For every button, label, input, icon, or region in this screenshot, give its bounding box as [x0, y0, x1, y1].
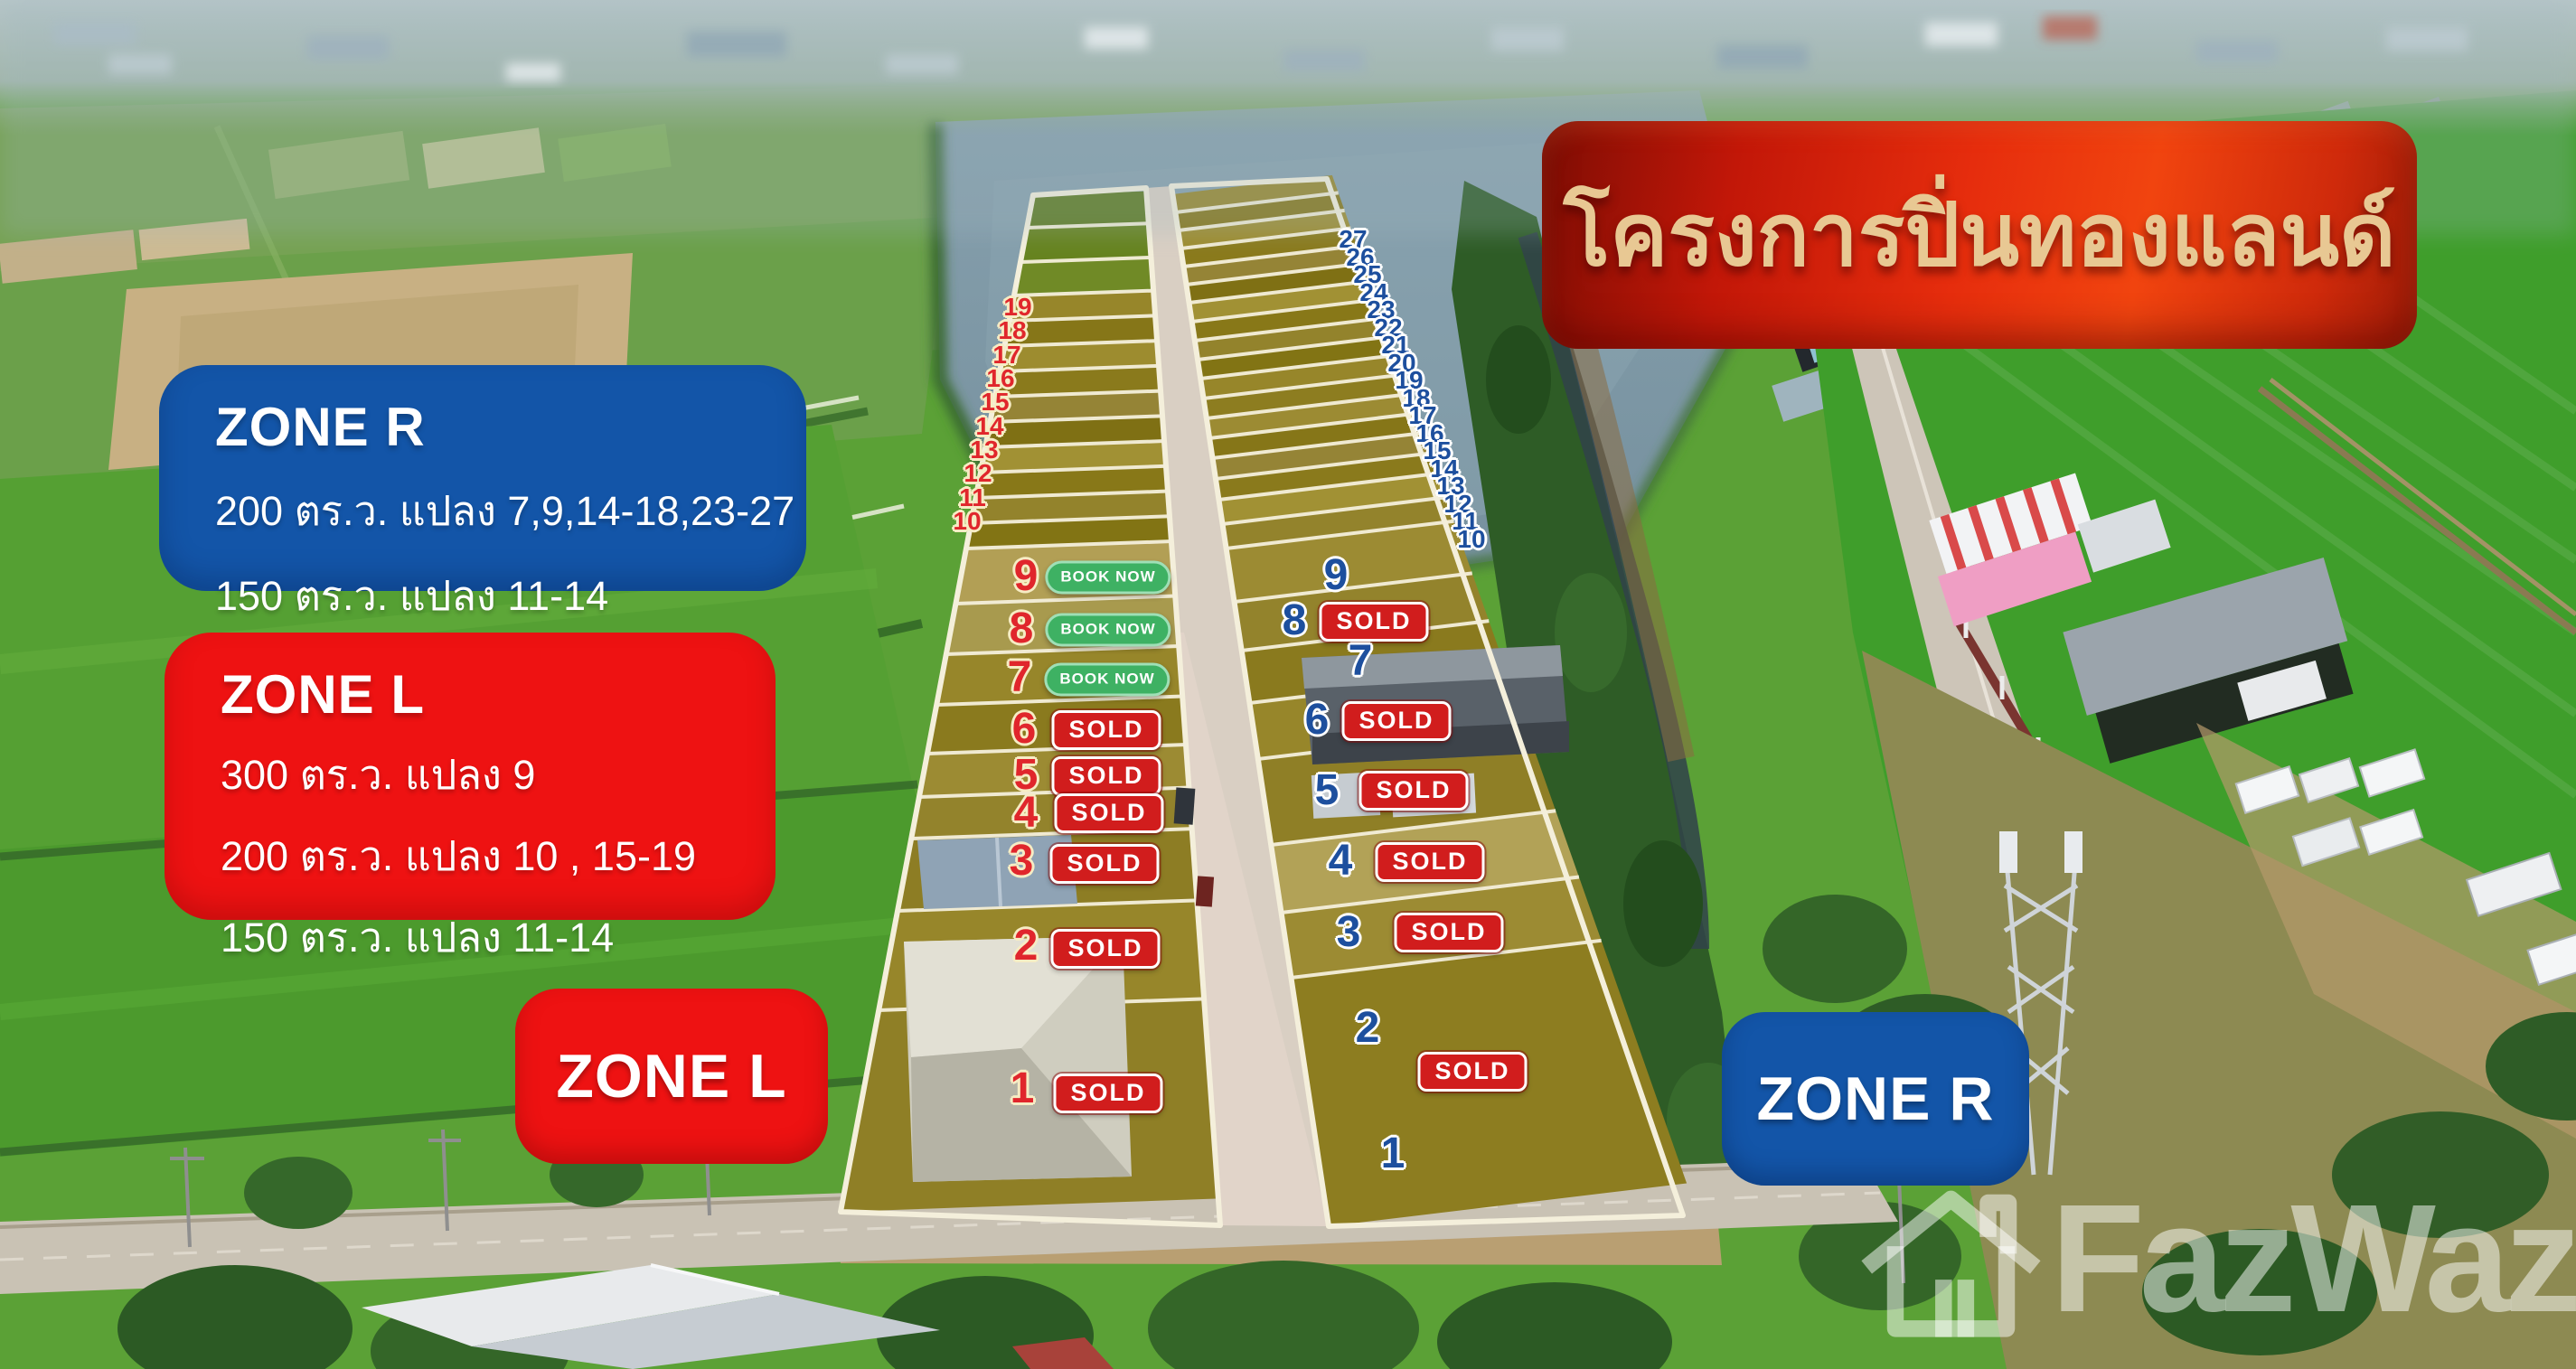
zone-l-label-text: ZONE L — [556, 1041, 786, 1111]
project-title-banner: โครงการปิ่นทองแลนด์ — [1542, 121, 2417, 349]
zone-r-info-line: 150 ตร.ว. แปลง 11-14 — [215, 563, 806, 628]
zone-r-label-text: ZONE R — [1757, 1064, 1995, 1134]
house-icon — [1858, 1166, 2044, 1351]
project-title: โครงการปิ่นทองแลนด์ — [1564, 166, 2396, 304]
zone-l-info-line: 300 ตร.ว. แปลง 9 — [221, 742, 776, 807]
zone-r-info-lines: 200 ตร.ว. แปลง 7,9,14-18,23-27150 ตร.ว. … — [215, 478, 806, 628]
zone-l-info-box: ZONE L 300 ตร.ว. แปลง 9200 ตร.ว. แปลง 10… — [165, 633, 776, 920]
zone-r-info-box: ZONE R 200 ตร.ว. แปลง 7,9,14-18,23-27150… — [159, 365, 806, 591]
aerial-site-photo: โครงการปิ่นทองแลนด์ ZONE R 200 ตร.ว. แปล… — [0, 0, 2576, 1369]
zone-r-info-line: 200 ตร.ว. แปลง 7,9,14-18,23-27 — [215, 478, 806, 543]
watermark-text: FazWaz — [2051, 1170, 2576, 1347]
zone-r-info-title: ZONE R — [215, 396, 806, 458]
zone-l-info-line: 200 ตร.ว. แปลง 10 , 15-19 — [221, 823, 776, 888]
zone-l-info-lines: 300 ตร.ว. แปลง 9200 ตร.ว. แปลง 10 , 15-1… — [221, 742, 776, 970]
fazwaz-watermark: FazWaz — [1858, 1166, 2576, 1351]
zone-r-label: ZONE R — [1722, 1012, 2029, 1186]
zone-l-label: ZONE L — [515, 989, 828, 1164]
zone-l-info-title: ZONE L — [221, 663, 776, 726]
zone-l-info-line: 150 ตร.ว. แปลง 11-14 — [221, 905, 776, 970]
